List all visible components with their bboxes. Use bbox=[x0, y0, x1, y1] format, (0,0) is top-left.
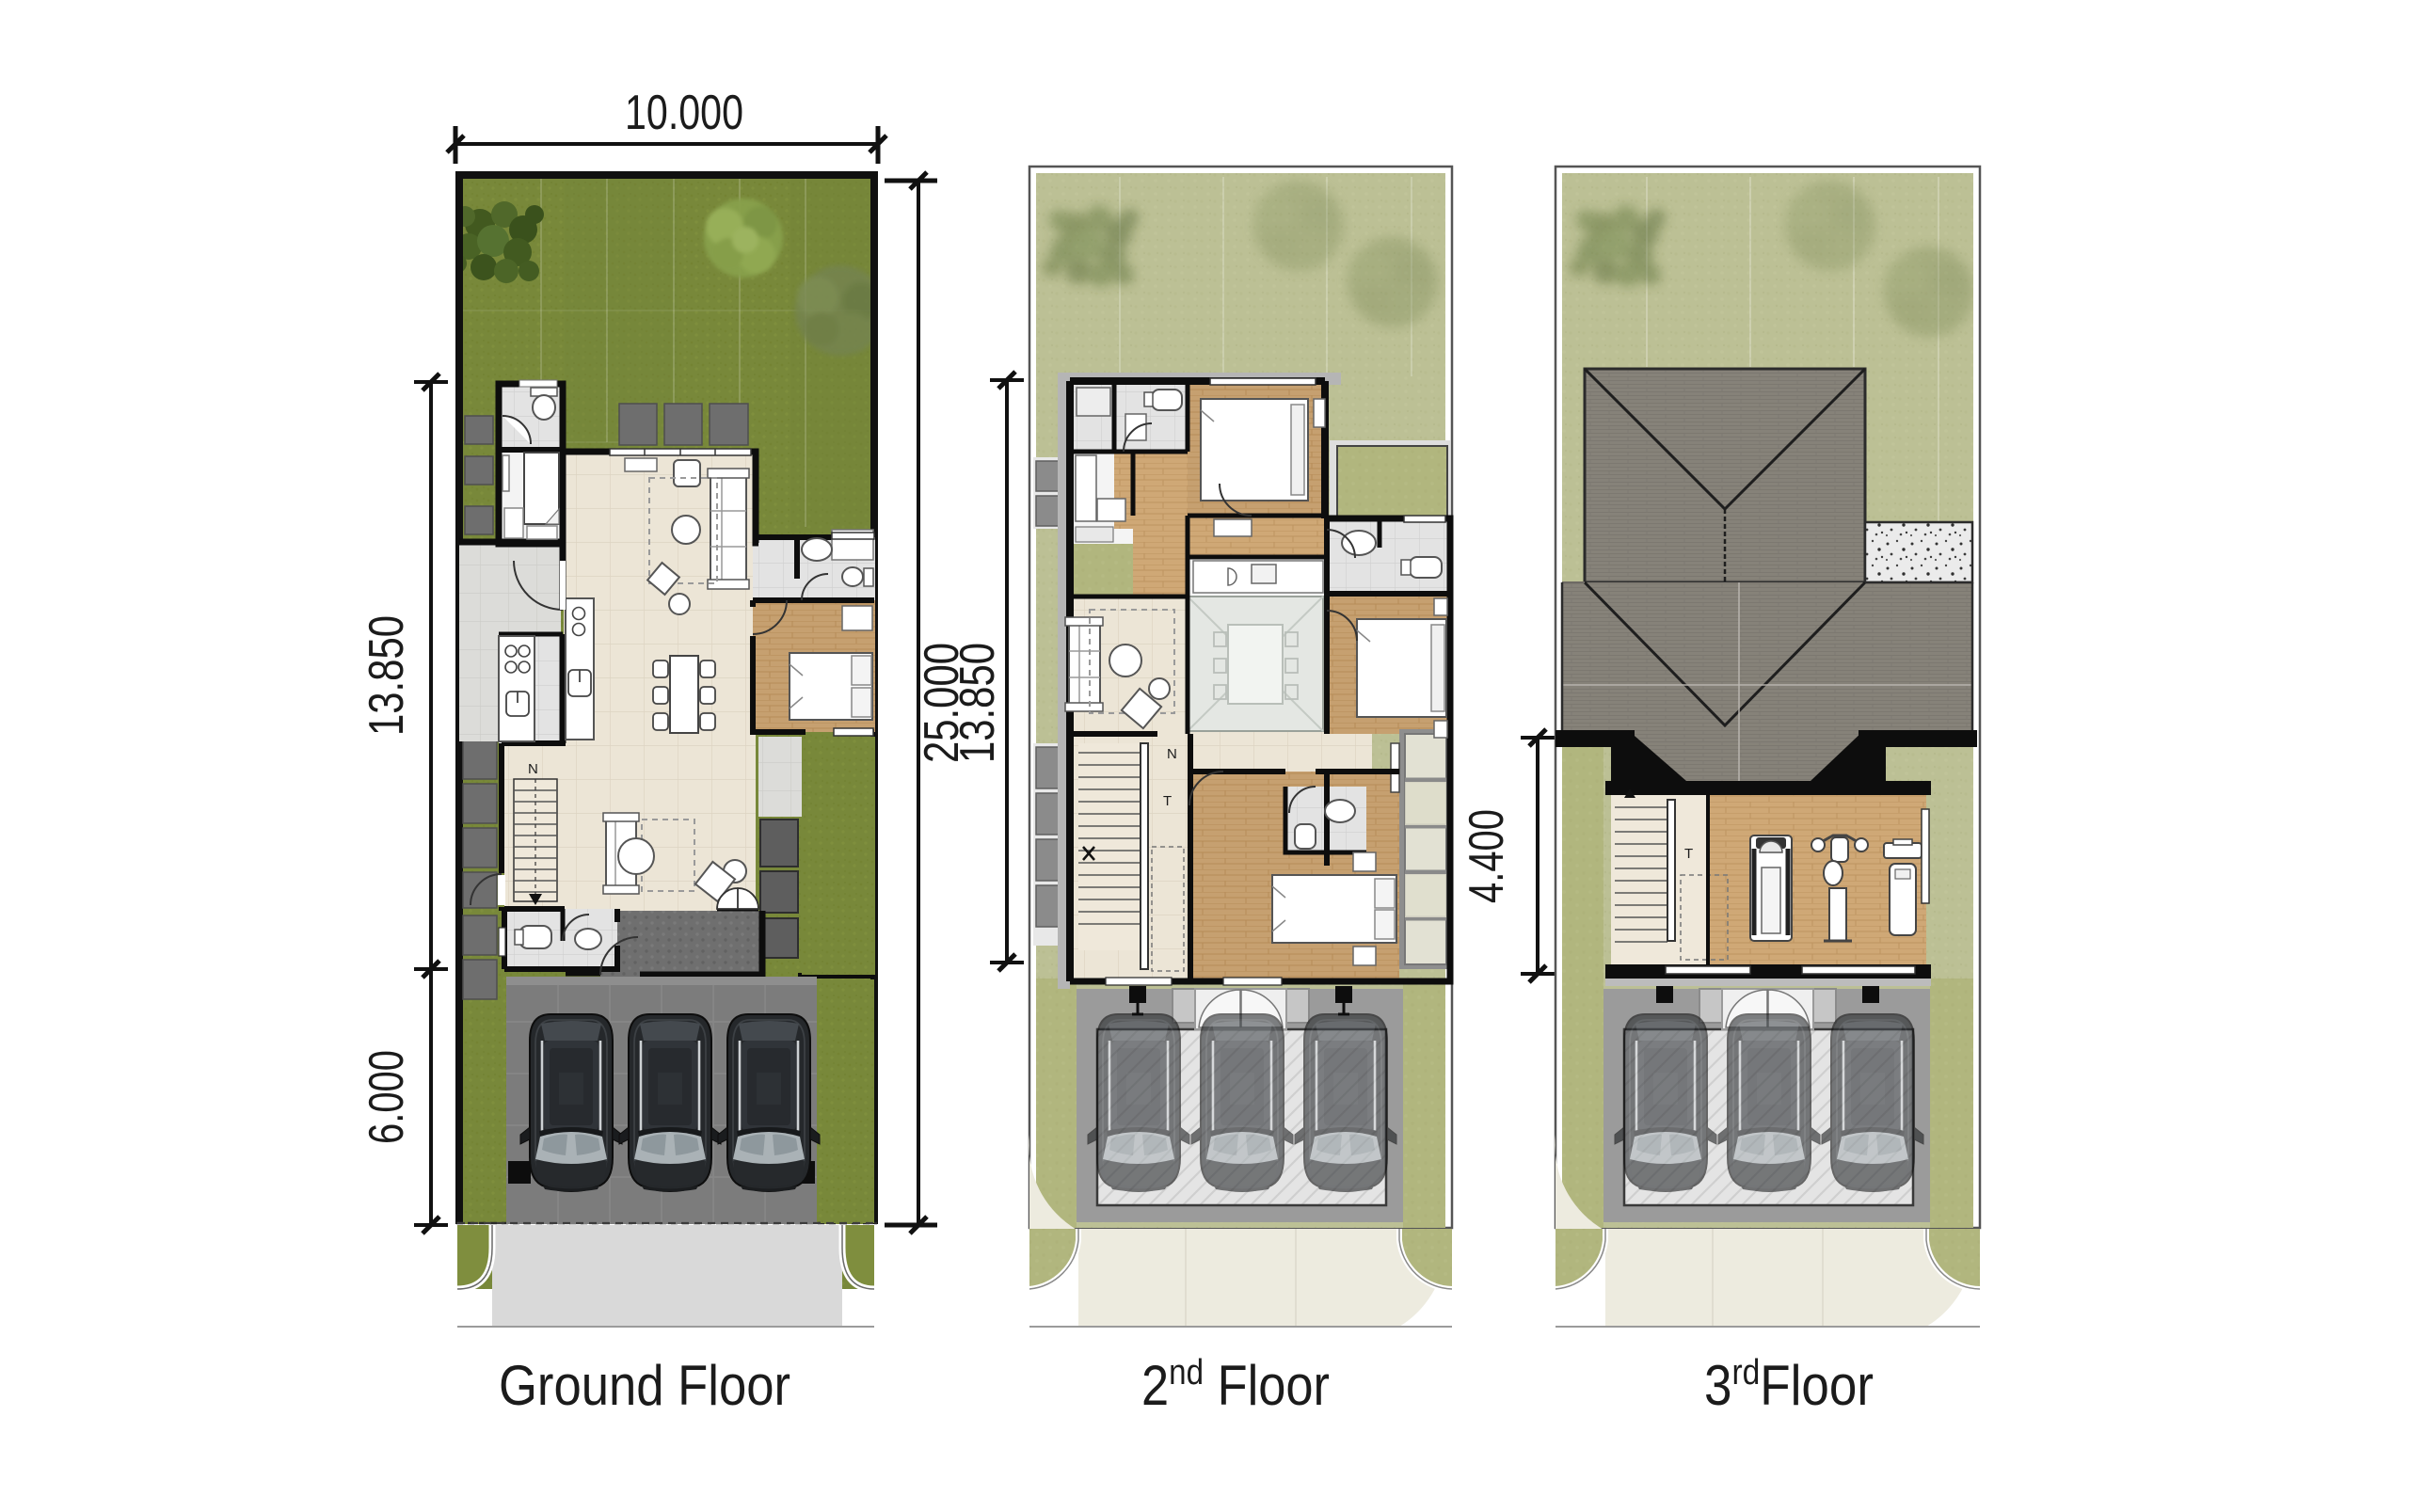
svg-text:13.850: 13.850 bbox=[950, 643, 1005, 763]
svg-text:2nd Floor: 2nd Floor bbox=[1141, 1353, 1330, 1417]
svg-text:T: T bbox=[1163, 793, 1172, 809]
svg-text:N: N bbox=[1167, 746, 1177, 762]
svg-text:N: N bbox=[528, 761, 538, 777]
svg-text:T: T bbox=[1684, 846, 1693, 862]
svg-text:6.000: 6.000 bbox=[359, 1050, 414, 1144]
svg-text:3rdFloor: 3rdFloor bbox=[1704, 1353, 1874, 1417]
svg-text:10.000: 10.000 bbox=[625, 86, 743, 140]
svg-text:Ground Floor: Ground Floor bbox=[499, 1354, 790, 1417]
svg-text:4.400: 4.400 bbox=[1460, 809, 1514, 903]
svg-text:13.850: 13.850 bbox=[359, 615, 414, 736]
